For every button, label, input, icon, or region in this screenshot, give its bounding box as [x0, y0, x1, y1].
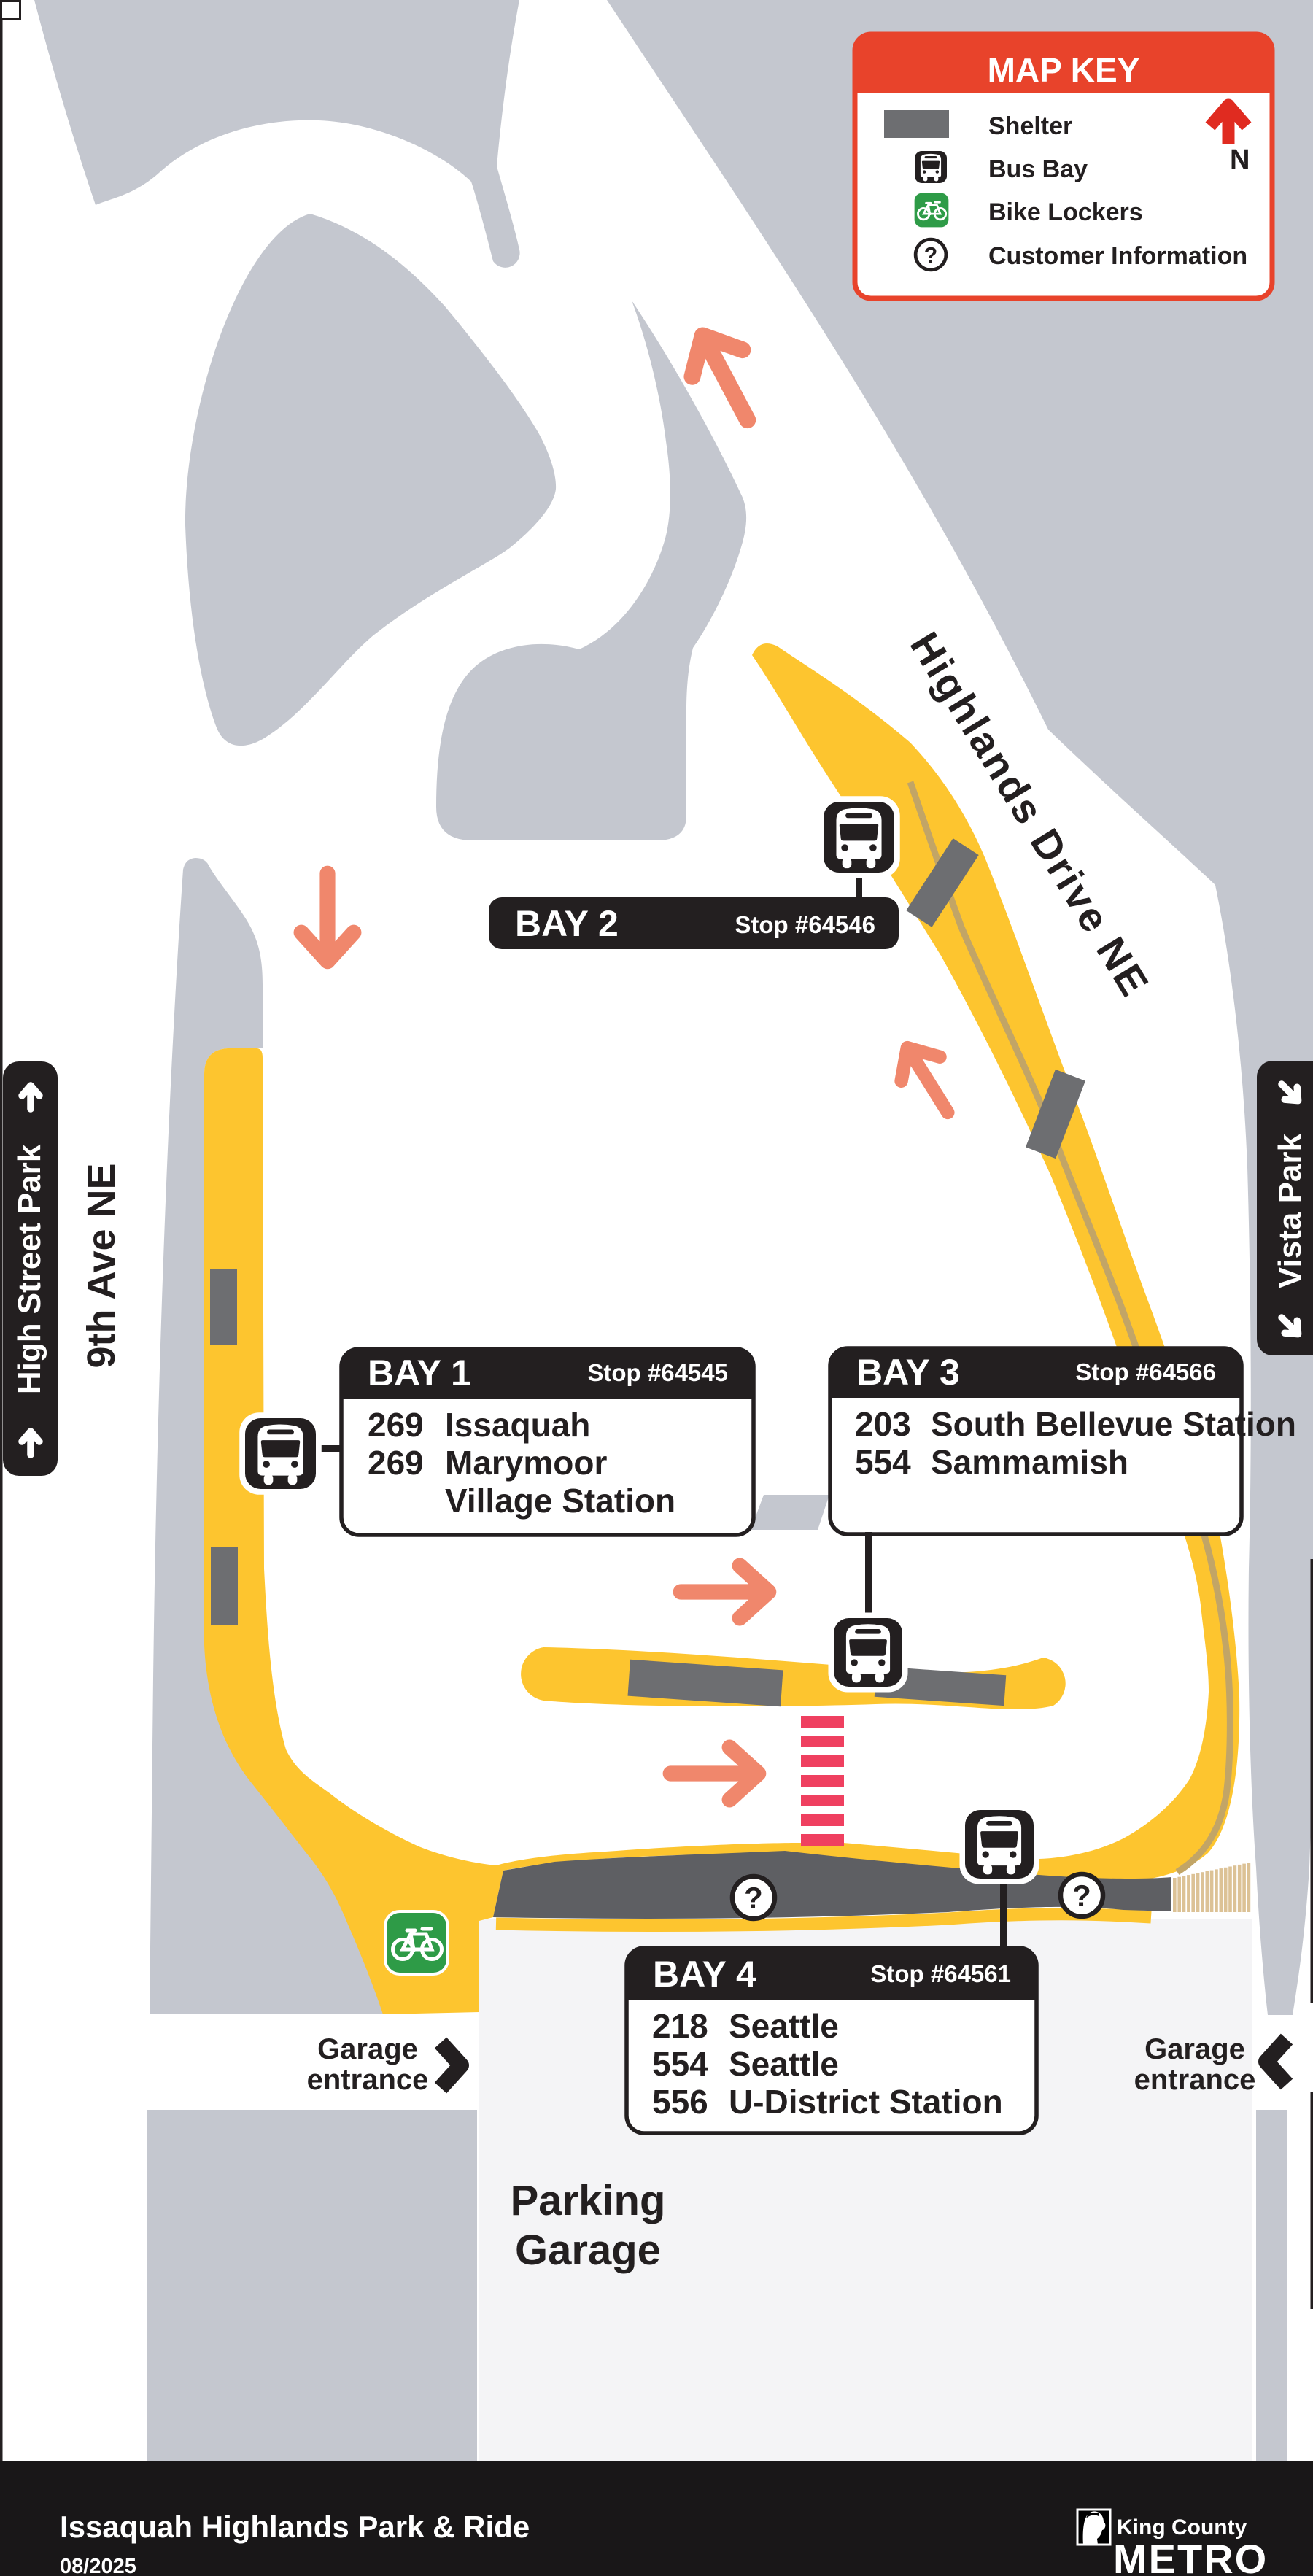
- svg-text:Seattle: Seattle: [729, 2007, 839, 2045]
- svg-text:South Bellevue Station: South Bellevue Station: [931, 1405, 1296, 1443]
- svg-text:BAY 4: BAY 4: [653, 1954, 756, 1995]
- svg-text:08/2025: 08/2025: [60, 2555, 136, 2576]
- svg-text:Bike Lockers: Bike Lockers: [988, 198, 1143, 226]
- svg-text:556: 556: [652, 2083, 708, 2121]
- svg-text:Seattle: Seattle: [729, 2045, 839, 2083]
- svg-text:BAY 3: BAY 3: [856, 1352, 960, 1393]
- svg-text:N: N: [1230, 144, 1250, 175]
- svg-text:Stop #64546: Stop #64546: [735, 911, 875, 938]
- svg-text:9th Ave NE: 9th Ave NE: [80, 1163, 123, 1368]
- svg-text:Shelter: Shelter: [988, 112, 1072, 140]
- svg-text:Stop #64545: Stop #64545: [587, 1359, 728, 1386]
- svg-text:218: 218: [652, 2007, 708, 2045]
- svg-text:269: 269: [368, 1406, 424, 1444]
- svg-text:Sammamish: Sammamish: [931, 1443, 1128, 1481]
- svg-text:Issaquah: Issaquah: [445, 1406, 590, 1444]
- svg-text:Garage: Garage: [317, 2033, 418, 2065]
- svg-text:BAY 2: BAY 2: [515, 903, 619, 944]
- svg-text:Parking: Parking: [511, 2177, 666, 2224]
- svg-text:entrance: entrance: [1134, 2064, 1256, 2096]
- svg-text:203: 203: [855, 1405, 911, 1443]
- svg-text:Stop #64566: Stop #64566: [1075, 1358, 1216, 1385]
- svg-text:Stop #64561: Stop #64561: [870, 1960, 1011, 1987]
- svg-text:Issaquah Highlands Park & Ride: Issaquah Highlands Park & Ride: [60, 2510, 530, 2544]
- svg-text:269: 269: [368, 1444, 424, 1482]
- svg-text:Garage: Garage: [1144, 2033, 1245, 2065]
- svg-text:Garage: Garage: [515, 2227, 661, 2274]
- svg-text:554: 554: [652, 2045, 708, 2083]
- svg-text:Village Station: Village Station: [445, 1482, 675, 1520]
- svg-text:Bus Bay: Bus Bay: [988, 155, 1088, 183]
- svg-text:METRO: METRO: [1113, 2536, 1268, 2576]
- svg-text:Marymoor: Marymoor: [445, 1444, 607, 1482]
- svg-text:entrance: entrance: [307, 2064, 429, 2096]
- svg-text:BAY 1: BAY 1: [368, 1353, 471, 1393]
- svg-text:Vista Park: Vista Park: [1272, 1133, 1308, 1288]
- svg-text:High Street Park: High Street Park: [12, 1144, 47, 1394]
- svg-text:MAP KEY: MAP KEY: [988, 51, 1140, 89]
- svg-text:554: 554: [855, 1443, 911, 1481]
- svg-text:U-District Station: U-District Station: [729, 2083, 1003, 2121]
- svg-text:Customer Information: Customer Information: [988, 242, 1247, 270]
